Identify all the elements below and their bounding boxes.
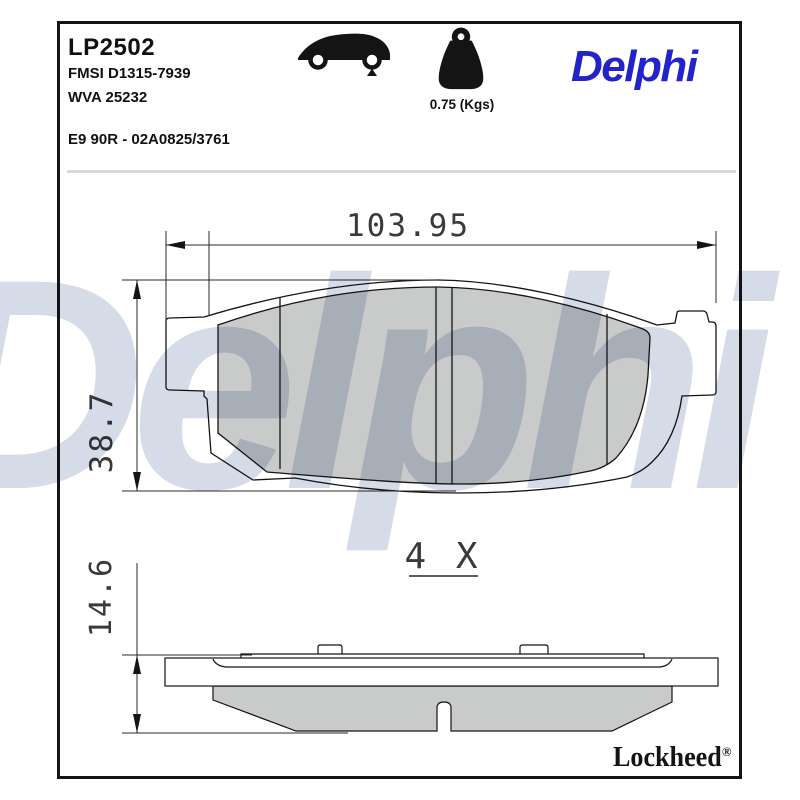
weight-icon — [430, 26, 492, 96]
arrowhead-down — [133, 472, 141, 491]
car-rear-axle-icon — [294, 27, 394, 79]
part-number: LP2502 — [68, 34, 155, 62]
height-dimension-label: 38.7 — [84, 391, 120, 474]
shim-clip-left — [318, 645, 342, 654]
arrowhead-up — [133, 655, 141, 674]
delphi-logo: Delphi — [571, 42, 696, 92]
front-view — [166, 280, 716, 493]
fmsi-reference: FMSI D1315-7939 — [68, 65, 191, 82]
friction-material-side — [213, 686, 672, 731]
thickness-dimension-label: 14.6 — [84, 557, 119, 637]
arrowhead-up — [133, 280, 141, 299]
lockheed-wordmark: Lockheed — [613, 741, 722, 774]
backing-plate-side — [165, 658, 718, 686]
side-view — [165, 645, 718, 731]
friction-material-front — [218, 287, 650, 484]
wva-reference: WVA 25232 — [68, 89, 147, 106]
weight-value: 0.75 (Kgs) — [412, 97, 512, 112]
arrowhead-left — [166, 241, 185, 249]
arrowhead-down — [133, 714, 141, 733]
shim-clip-right — [520, 645, 548, 654]
ece-approval-reference: E9 90R - 02A0825/3761 — [68, 131, 230, 148]
arrowhead-right — [697, 241, 716, 249]
rear-axle-marker — [367, 69, 377, 77]
brake-pad-technical-drawing: 103.95 38.7 4 X 14.6 — [0, 0, 800, 800]
width-dimension-label: 103.95 — [346, 208, 470, 244]
header-separator-line — [67, 170, 736, 173]
datasheet-page: 103.95 38.7 4 X 14.6 — [0, 0, 800, 800]
quantity-label: 4 X — [404, 536, 481, 577]
lockheed-logo: Lockheed® — [613, 741, 744, 774]
registered-trademark-symbol: ® — [722, 744, 732, 759]
